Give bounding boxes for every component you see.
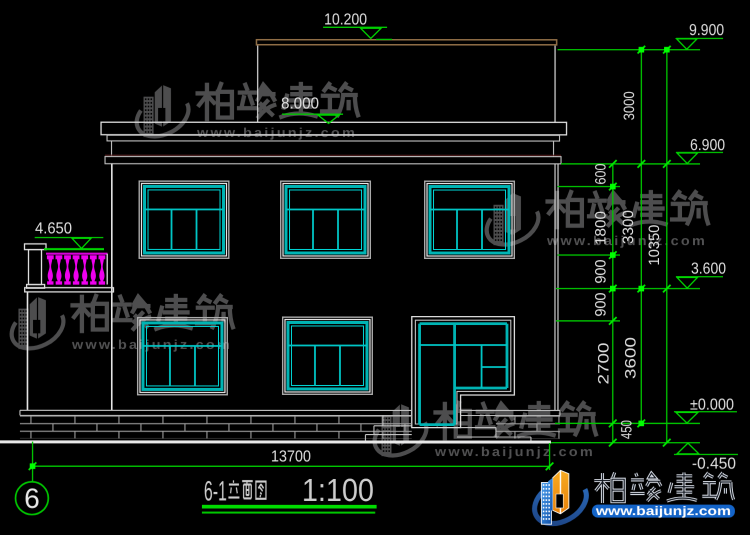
svg-text:6: 6 — [24, 483, 40, 514]
svg-text:900: 900 — [592, 260, 609, 284]
svg-text:3600: 3600 — [622, 337, 639, 379]
svg-text:6-1: 6-1 — [204, 475, 227, 506]
svg-text:1800: 1800 — [593, 211, 610, 245]
svg-text:900: 900 — [592, 293, 609, 317]
svg-text:450: 450 — [618, 420, 635, 439]
svg-text:10.200: 10.200 — [324, 11, 367, 28]
svg-text:www.baijunjz.com: www.baijunjz.com — [595, 504, 731, 518]
svg-text:600: 600 — [593, 164, 610, 185]
svg-text:4.650: 4.650 — [35, 220, 72, 237]
svg-text:10350: 10350 — [646, 225, 663, 266]
svg-text:-0.450: -0.450 — [692, 456, 736, 473]
svg-text:1:100: 1:100 — [302, 472, 374, 508]
svg-text:9.900: 9.900 — [689, 22, 724, 39]
svg-text:3000: 3000 — [621, 91, 638, 120]
svg-text:2700: 2700 — [595, 343, 612, 385]
svg-text:8.000: 8.000 — [281, 95, 319, 112]
svg-text:13700: 13700 — [271, 448, 311, 465]
svg-text:3.600: 3.600 — [691, 261, 726, 278]
svg-text:3300: 3300 — [620, 210, 637, 244]
svg-text:6.900: 6.900 — [690, 137, 725, 154]
